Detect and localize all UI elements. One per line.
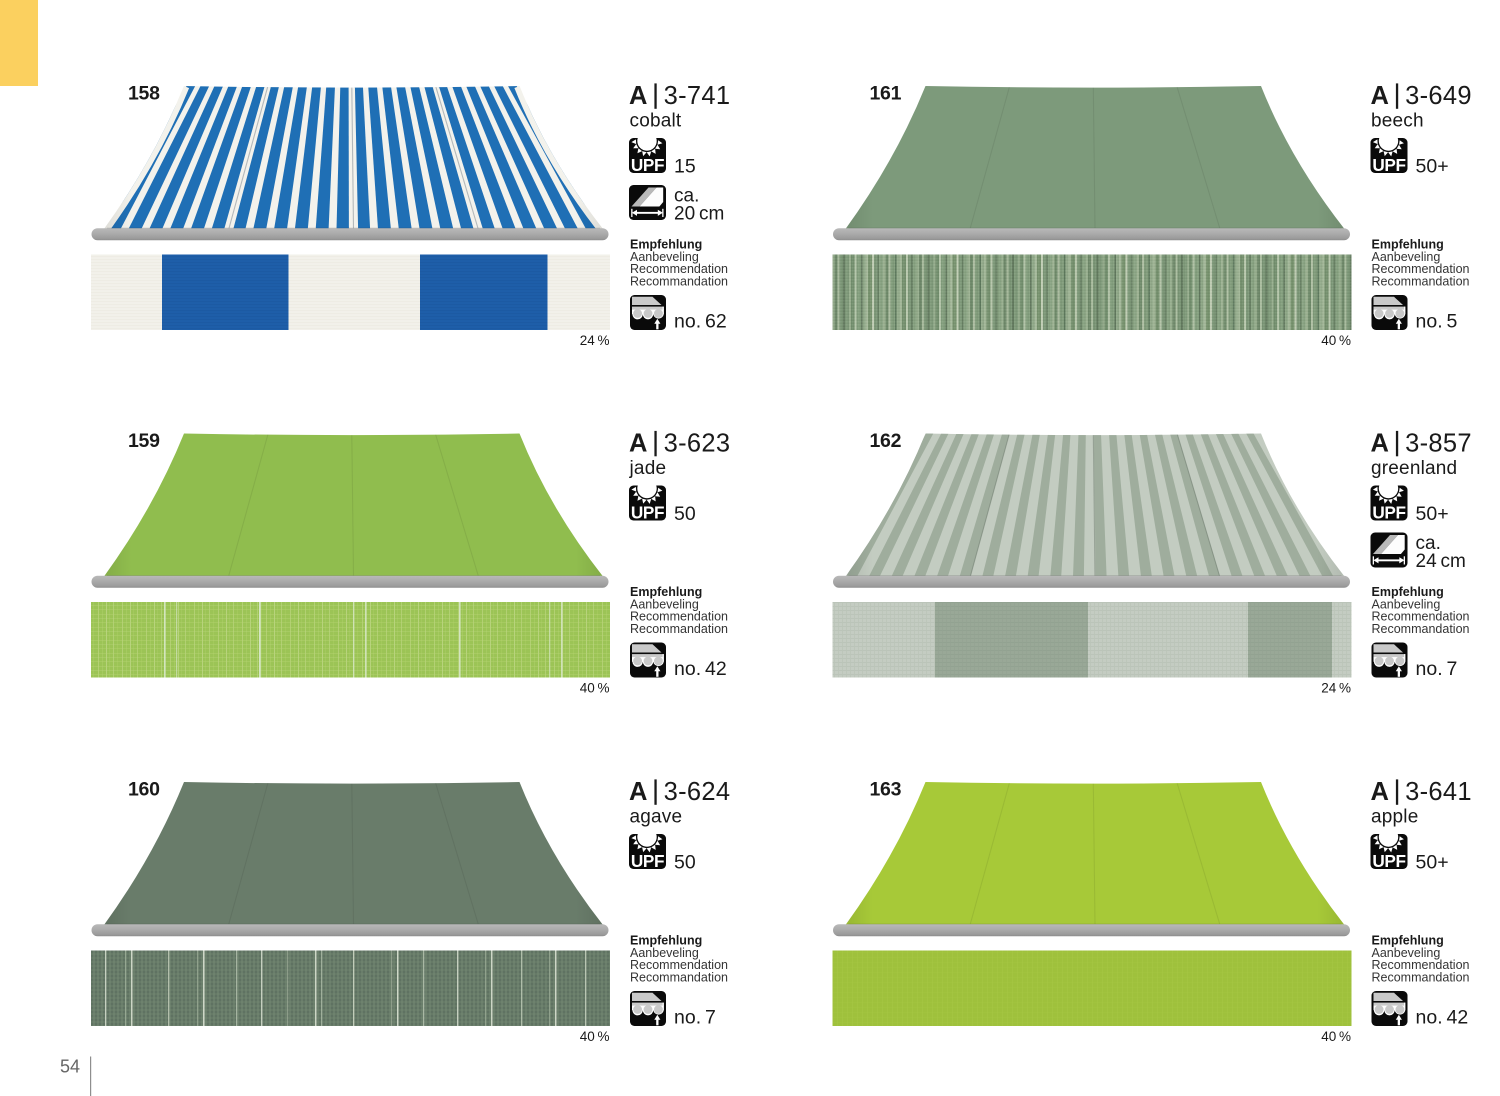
svg-text:3-624: 3-624 [664,778,731,806]
svg-text:Recommandation: Recommandation [630,275,728,289]
svg-text:UPF: UPF [631,155,664,175]
svg-text:50+: 50+ [1416,852,1449,874]
svg-text:Recommandation: Recommandation [1372,275,1470,289]
svg-text:UPF: UPF [1372,851,1405,871]
svg-text:apple: apple [1371,807,1419,828]
svg-text:3-741: 3-741 [664,82,731,110]
svg-text:15: 15 [674,156,696,178]
svg-text:159: 159 [128,430,160,452]
svg-text:161: 161 [870,83,902,105]
svg-text:3-649: 3-649 [1405,82,1472,110]
svg-text:A: A [1371,430,1389,458]
svg-text:163: 163 [870,779,902,801]
svg-text:greenland: greenland [1371,458,1457,479]
svg-text:agave: agave [630,807,683,828]
svg-text:no. 62: no. 62 [674,311,727,333]
svg-text:3-857: 3-857 [1405,430,1472,458]
svg-text:3-623: 3-623 [664,430,731,458]
svg-text:54: 54 [60,1057,80,1077]
svg-text:24 %: 24 % [1321,680,1351,695]
svg-text:A: A [1371,778,1389,806]
svg-text:3-641: 3-641 [1405,778,1472,806]
svg-text:Recommandation: Recommandation [1372,971,1470,985]
svg-text:cobalt: cobalt [630,111,682,132]
svg-text:40 %: 40 % [1321,333,1351,348]
svg-text:160: 160 [128,779,160,801]
svg-text:A: A [629,430,647,458]
svg-text:A: A [629,82,647,110]
svg-text:50: 50 [674,503,696,525]
svg-text:158: 158 [128,83,160,105]
svg-text:50: 50 [674,852,696,874]
svg-text:no. 7: no. 7 [1416,658,1458,680]
svg-text:40 %: 40 % [580,680,610,695]
svg-text:162: 162 [870,430,902,452]
svg-text:jade: jade [629,458,667,479]
svg-text:no. 7: no. 7 [674,1007,716,1029]
svg-text:no. 5: no. 5 [1416,311,1458,333]
svg-text:40 %: 40 % [1321,1029,1351,1044]
svg-text:UPF: UPF [1372,502,1405,522]
svg-text:Recommandation: Recommandation [1372,622,1470,636]
svg-text:24 %: 24 % [580,333,610,348]
svg-text:Recommandation: Recommandation [630,971,728,985]
svg-text:UPF: UPF [631,502,664,522]
svg-text:A: A [629,778,647,806]
svg-text:UPF: UPF [1372,155,1405,175]
svg-text:50+: 50+ [1416,156,1449,178]
svg-text:no. 42: no. 42 [1416,1007,1469,1029]
svg-text:beech: beech [1371,111,1424,132]
svg-text:50+: 50+ [1416,503,1449,525]
svg-text:no. 42: no. 42 [674,658,727,680]
svg-text:UPF: UPF [631,851,664,871]
svg-text:Recommandation: Recommandation [630,622,728,636]
svg-text:A: A [1371,82,1389,110]
svg-text:20 cm: 20 cm [674,204,724,225]
svg-text:24 cm: 24 cm [1416,551,1466,572]
svg-text:40 %: 40 % [580,1029,610,1044]
